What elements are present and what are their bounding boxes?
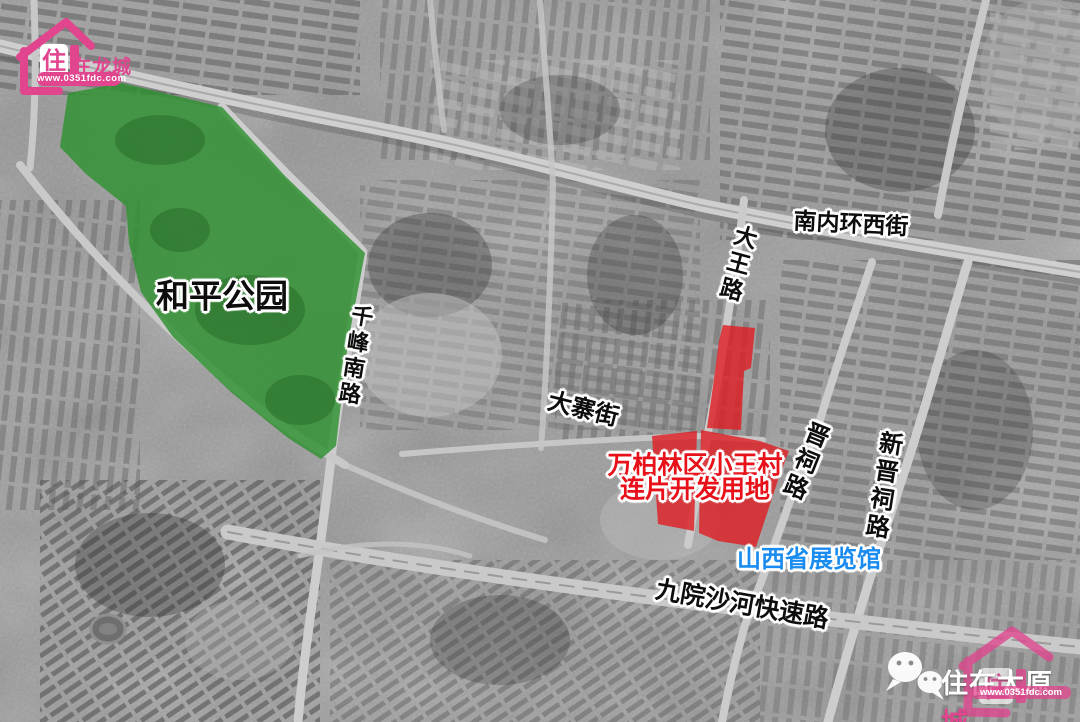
development-label-line2: 连片开发用地 <box>620 478 770 503</box>
wechat-icon <box>886 652 944 700</box>
satellite-background <box>0 0 1080 722</box>
watermark-url: www.0351fdc.com <box>971 686 1071 699</box>
park-label: 和平公园 <box>156 280 288 313</box>
brand-logo-top-left: 住 在龙城 www.0351fdc.com <box>0 0 150 110</box>
watermark-bottom-right: 住 住在太原城 www.0351fdc.com <box>870 615 1080 722</box>
satellite-map: 和平公园 南内环西街 大王路 千峰南路 大寨街 万柏林区小王村 连片开发用地 晋… <box>0 0 1080 722</box>
brand-url: www.0351fdc.com <box>37 72 121 86</box>
exhibition-hall-label: 山西省展览馆 <box>737 548 881 572</box>
account-name-accent: 城 <box>941 708 969 722</box>
stadium-track <box>91 615 125 643</box>
road-label-nanneihuan: 南内环西街 <box>793 210 909 239</box>
house-char: 住 <box>42 47 66 75</box>
